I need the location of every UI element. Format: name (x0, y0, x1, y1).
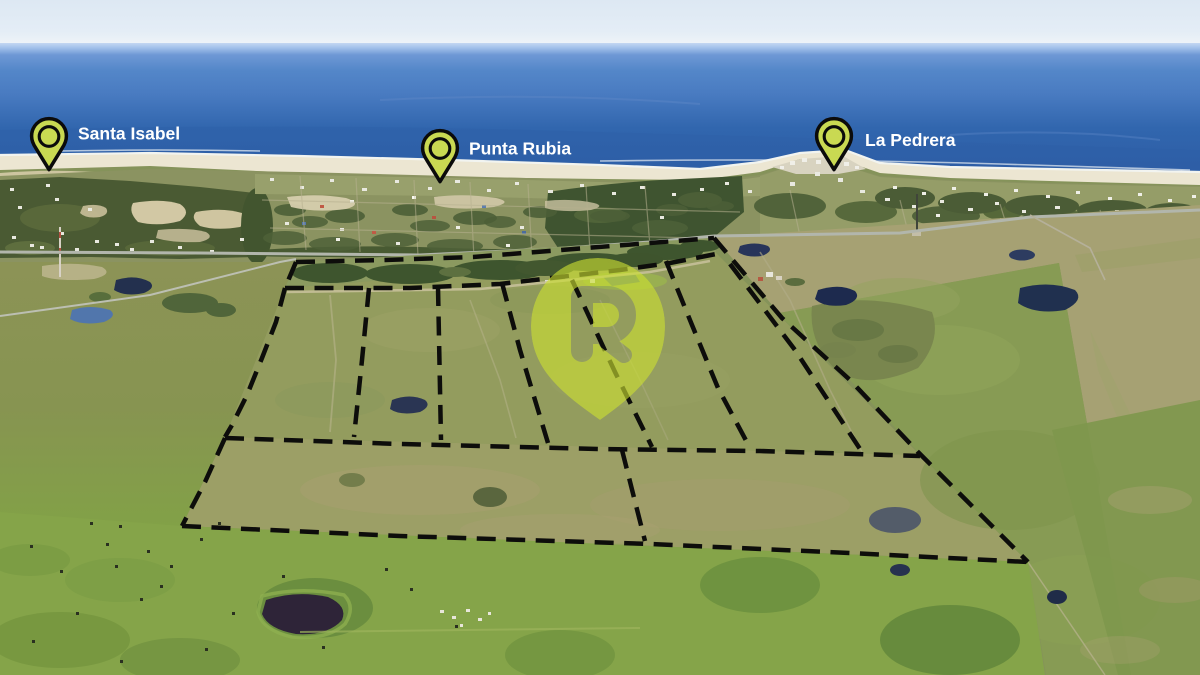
svg-text:Punta Rubia: Punta Rubia (469, 139, 571, 159)
svg-text:La Pedrera: La Pedrera (865, 130, 956, 150)
svg-text:Santa Isabel: Santa Isabel (78, 124, 180, 144)
